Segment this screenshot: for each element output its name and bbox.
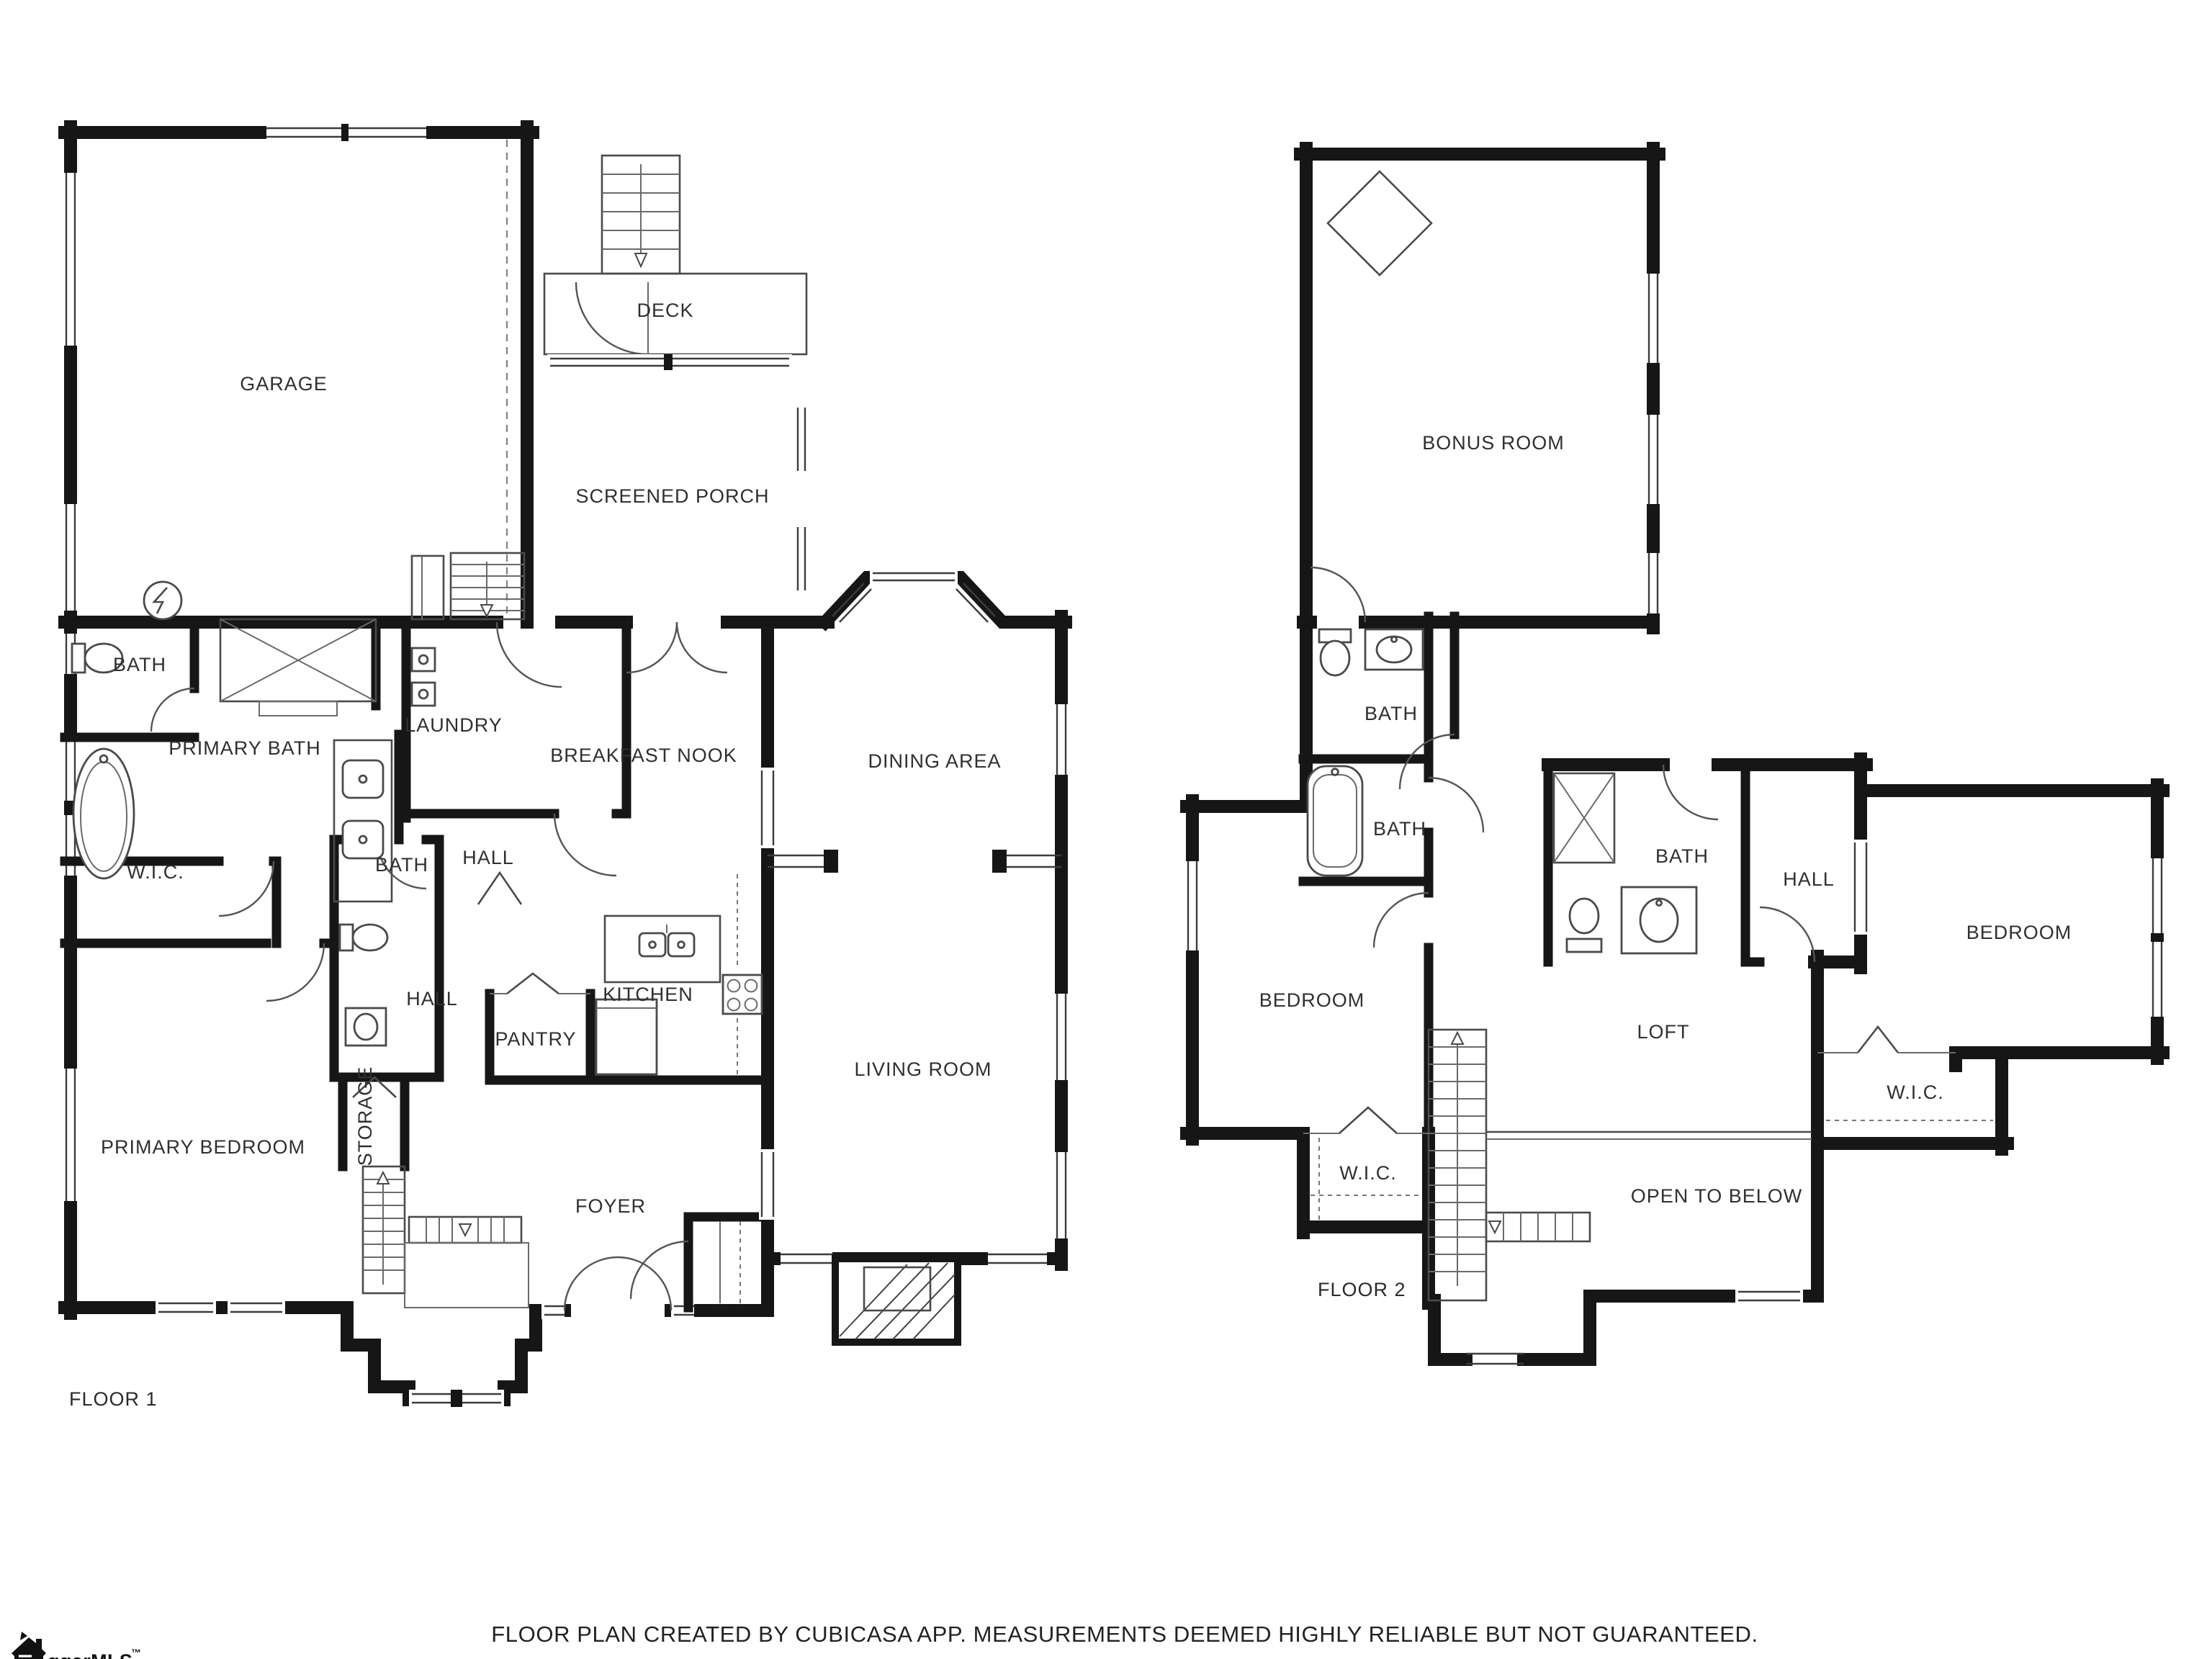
- room-label-bath-b: BATH: [1373, 818, 1426, 840]
- bonus-room-diamond-icon: [1328, 171, 1431, 275]
- room-label-deck: DECK: [637, 300, 693, 321]
- room-label-pantry: PANTRY: [495, 1028, 576, 1050]
- deck-structure: [544, 156, 806, 354]
- logo-text: ggarMLS: [48, 1650, 132, 1659]
- floor1-openings: [759, 768, 1061, 1220]
- room-label-hall2: HALL: [1783, 868, 1835, 890]
- floor1-caption: FLOOR 1: [69, 1388, 158, 1410]
- logo-tm: ™: [131, 1647, 141, 1658]
- floorplan-canvas: GARAGE DECK SCREENED PORCH BATH PRIMARY …: [0, 0, 2212, 1659]
- floor2-plan: BONUS ROOM BATH BATH BATH HALL BEDROOM B…: [1184, 148, 2166, 1364]
- room-label-wic1: W.I.C.: [127, 861, 184, 883]
- floor2-exterior-walls: [1187, 148, 2163, 1359]
- room-label-dining-area: DINING AREA: [868, 750, 1001, 772]
- room-label-laundry: LAUNDRY: [405, 714, 503, 736]
- fireplace-icon: [835, 1259, 958, 1342]
- disclaimer-text: FLOOR PLAN CREATED BY CUBICASA APP. MEAS…: [491, 1622, 1758, 1647]
- room-label-primary-bedroom: PRIMARY BEDROOM: [101, 1136, 305, 1158]
- room-label-breakfast-nook: BREAKFAST NOOK: [550, 745, 737, 766]
- room-label-bonus-room: BONUS ROOM: [1422, 432, 1565, 454]
- room-label-kitchen: KITCHEN: [603, 984, 693, 1005]
- room-label-hall-upper: HALL: [462, 847, 514, 868]
- room-label-bath2: BATH: [375, 854, 428, 876]
- room-label-primary-bath: PRIMARY BATH: [168, 737, 321, 759]
- room-label-open-to-below: OPEN TO BELOW: [1631, 1185, 1803, 1207]
- water-heater-icon: [144, 582, 181, 619]
- room-label-bath1: BATH: [113, 654, 166, 675]
- room-label-bath-a: BATH: [1364, 703, 1418, 724]
- room-label-loft: LOFT: [1637, 1021, 1689, 1043]
- room-label-foyer: FOYER: [575, 1195, 646, 1217]
- room-label-wic-left: W.I.C.: [1339, 1162, 1397, 1184]
- footer: FLOOR PLAN CREATED BY CUBICASA APP. MEAS…: [491, 1622, 1758, 1647]
- room-label-bath-c: BATH: [1655, 845, 1709, 867]
- room-label-wic-right: W.I.C.: [1887, 1082, 1944, 1103]
- house-logo-icon: [12, 1632, 46, 1659]
- floor2-labels: BONUS ROOM BATH BATH BATH HALL BEDROOM B…: [1259, 432, 2072, 1300]
- brand-logo: ggarMLS ™: [12, 1632, 141, 1659]
- floor1-labels: GARAGE DECK SCREENED PORCH BATH PRIMARY …: [69, 300, 1002, 1410]
- room-label-screened-porch: SCREENED PORCH: [575, 485, 769, 507]
- floor2-caption: FLOOR 2: [1318, 1279, 1406, 1300]
- room-label-bedroom-left: BEDROOM: [1259, 989, 1365, 1011]
- room-label-hall-lower: HALL: [406, 988, 458, 1010]
- room-label-bedroom-right: BEDROOM: [1966, 922, 2072, 943]
- floor1-stairs: [353, 553, 590, 1308]
- floor1-plan: GARAGE DECK SCREENED PORCH BATH PRIMARY …: [62, 124, 1070, 1410]
- floor1-fixtures: [72, 582, 958, 1342]
- room-label-storage: STORAGE: [354, 1066, 376, 1166]
- room-label-living-room: LIVING ROOM: [854, 1058, 992, 1080]
- room-label-garage: GARAGE: [240, 373, 328, 395]
- floor2-interior-walls: [1303, 616, 1760, 1133]
- floor2-stairs: [1429, 1030, 1812, 1300]
